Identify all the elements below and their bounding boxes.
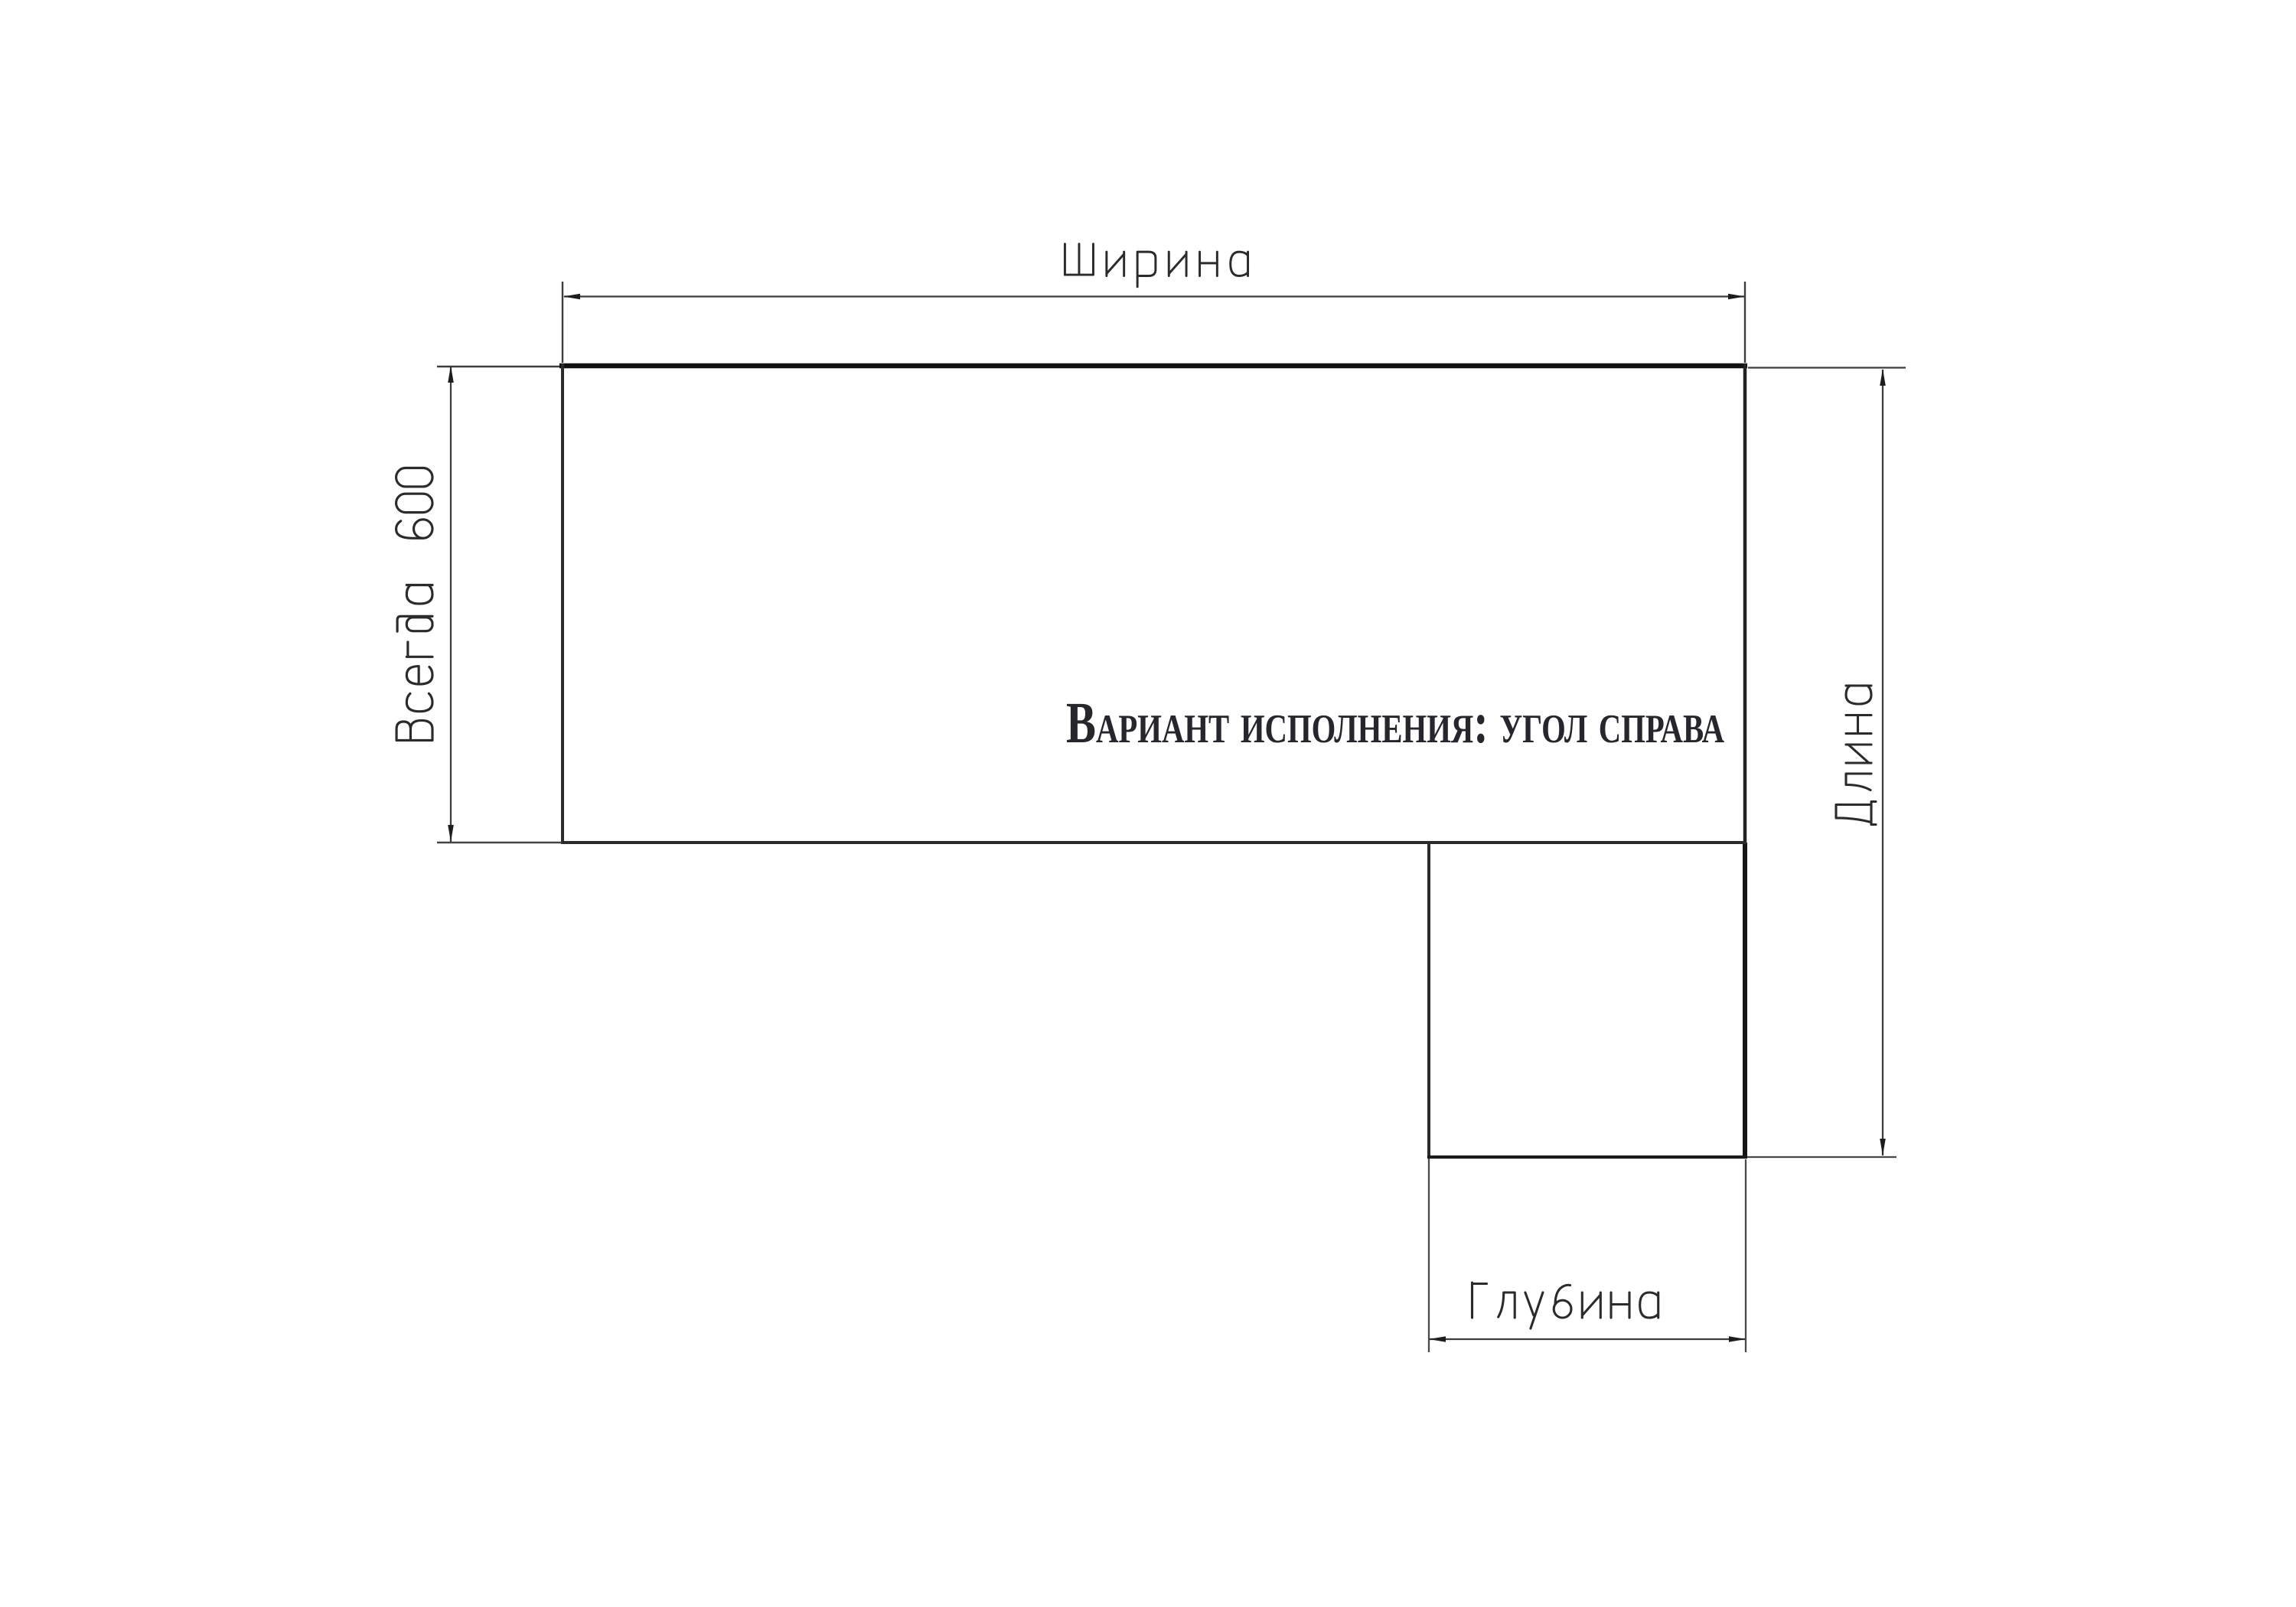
svg-text:Вариант исполнения: угол справ: Вариант исполнения: угол справа	[1066, 691, 1724, 755]
